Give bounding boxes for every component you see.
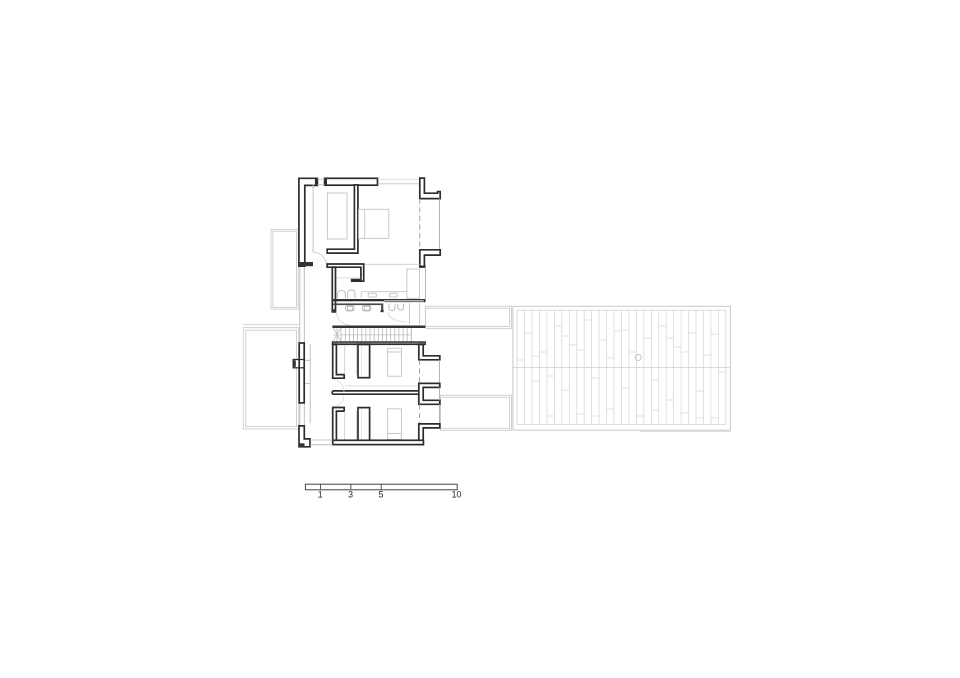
svg-text:1: 1 [318,490,323,500]
svg-text:3: 3 [348,490,353,500]
svg-text:5: 5 [378,490,383,500]
svg-text:10: 10 [452,490,462,500]
